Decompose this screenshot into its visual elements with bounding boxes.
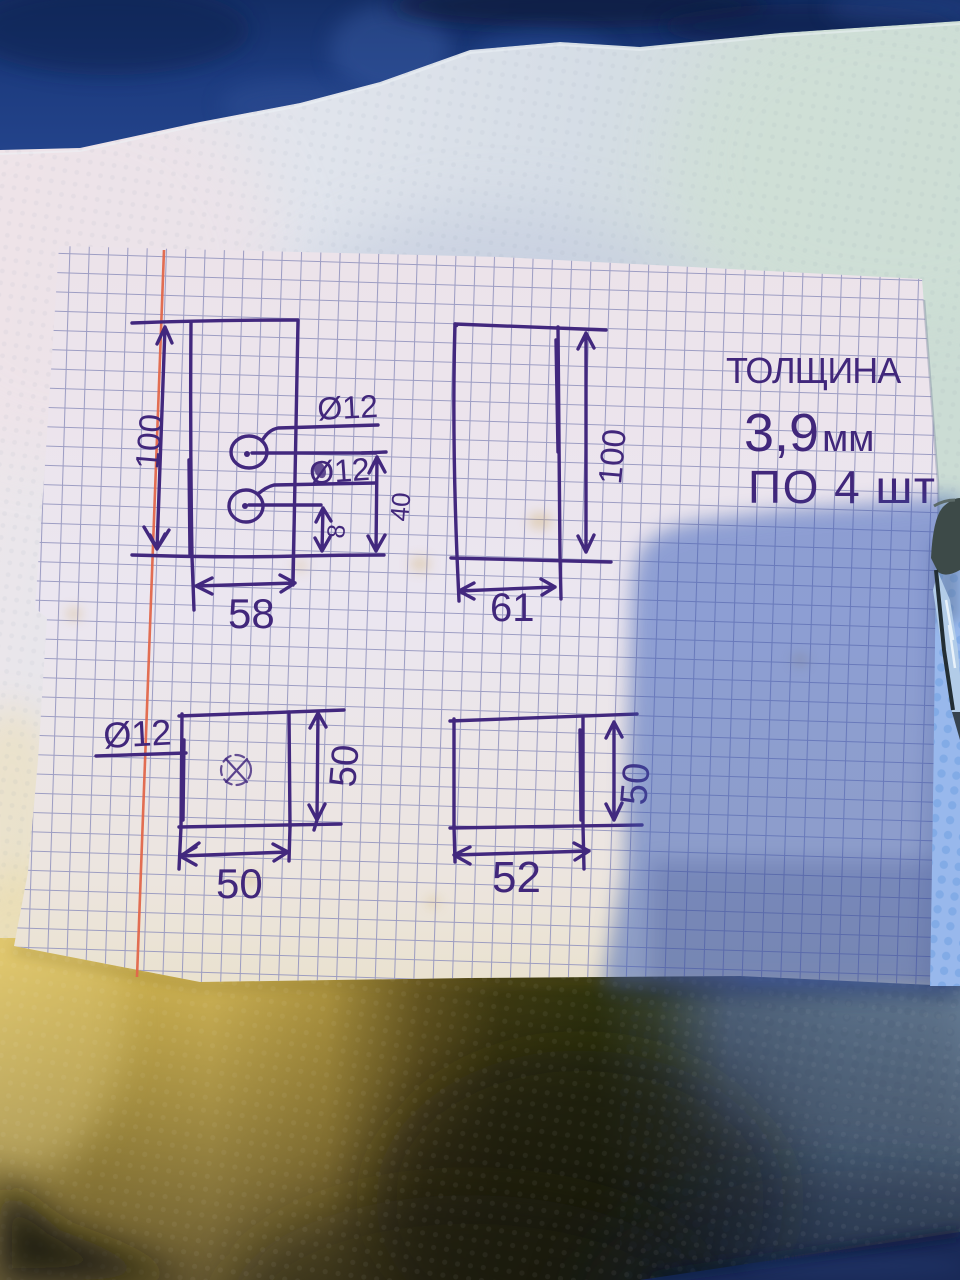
svg-text:Ø12: Ø12 — [102, 711, 172, 756]
svg-text:52: 52 — [492, 853, 541, 902]
svg-text:100: 100 — [128, 413, 170, 471]
svg-text:58: 58 — [228, 590, 275, 637]
svg-text:Ø12: Ø12 — [316, 388, 378, 427]
svg-text:50: 50 — [216, 860, 263, 907]
svg-text:100: 100 — [591, 428, 633, 486]
svg-text:8: 8 — [322, 523, 351, 539]
svg-text:40: 40 — [384, 491, 416, 522]
svg-text:50: 50 — [322, 743, 368, 789]
svg-text:61: 61 — [490, 586, 535, 630]
svg-text:ТОЛЩИНА: ТОЛЩИНА — [726, 350, 901, 391]
